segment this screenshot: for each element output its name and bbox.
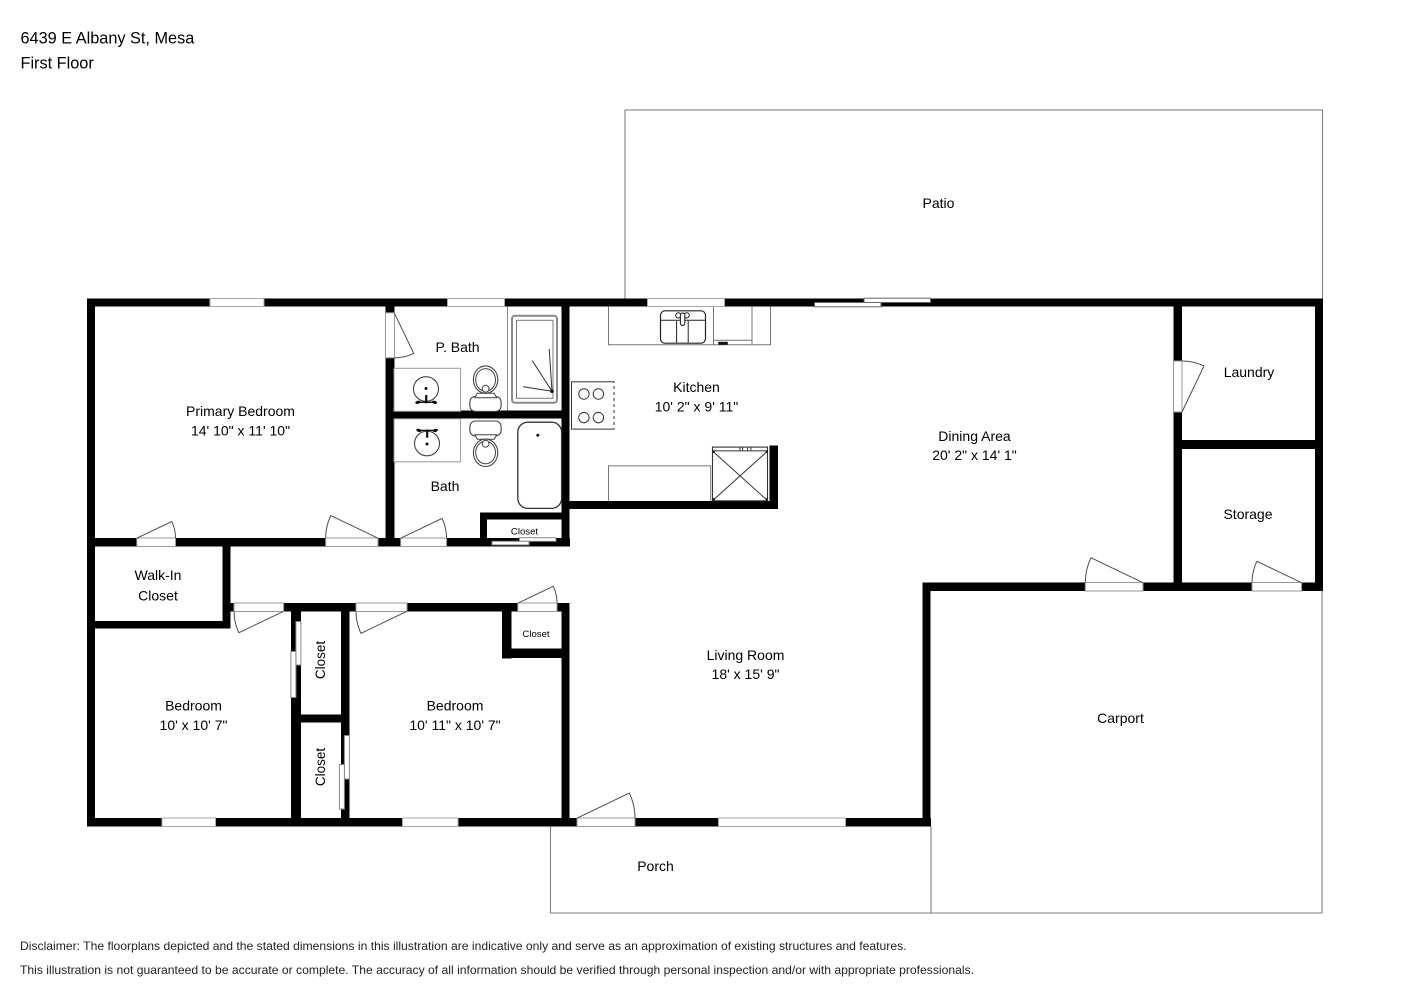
svg-text:Disclaimer: The floorplans dep: Disclaimer: The floorplans depicted and …	[20, 939, 907, 953]
svg-text:10' x 10' 7": 10' x 10' 7"	[160, 717, 228, 733]
svg-text:Walk-In: Walk-In	[135, 567, 182, 583]
svg-text:P. Bath: P. Bath	[435, 339, 479, 355]
svg-text:Dining Area: Dining Area	[938, 428, 1011, 444]
svg-text:10' 2" x 9' 11": 10' 2" x 9' 11"	[655, 399, 739, 415]
svg-text:18' x 15' 9": 18' x 15' 9"	[712, 666, 780, 682]
svg-text:Bath: Bath	[431, 478, 460, 494]
svg-text:Bedroom: Bedroom	[165, 698, 222, 714]
svg-text:6439 E Albany St, Mesa: 6439 E Albany St, Mesa	[21, 30, 196, 48]
svg-text:This illustration is not guara: This illustration is not guaranteed to b…	[20, 963, 974, 977]
svg-text:Primary Bedroom: Primary Bedroom	[186, 403, 295, 419]
svg-text:10' 11" x 10' 7": 10' 11" x 10' 7"	[409, 717, 500, 733]
svg-text:Closet: Closet	[138, 588, 178, 604]
svg-text:Closet: Closet	[511, 526, 539, 537]
svg-text:First Floor: First Floor	[21, 55, 95, 73]
svg-text:Storage: Storage	[1223, 506, 1272, 522]
svg-text:Closet: Closet	[313, 748, 328, 787]
svg-text:Laundry: Laundry	[1224, 364, 1275, 380]
svg-text:Living Room: Living Room	[707, 647, 785, 663]
svg-text:Patio: Patio	[923, 195, 955, 211]
svg-text:Closet: Closet	[522, 629, 550, 640]
svg-text:20' 2" x 14' 1": 20' 2" x 14' 1"	[932, 447, 1017, 463]
svg-text:14' 10" x 11' 10": 14' 10" x 11' 10"	[191, 423, 290, 439]
svg-text:Porch: Porch	[637, 858, 674, 874]
svg-text:Closet: Closet	[313, 641, 328, 680]
svg-text:Carport: Carport	[1097, 710, 1144, 726]
svg-text:Kitchen: Kitchen	[673, 379, 720, 395]
svg-text:Bedroom: Bedroom	[427, 698, 484, 714]
